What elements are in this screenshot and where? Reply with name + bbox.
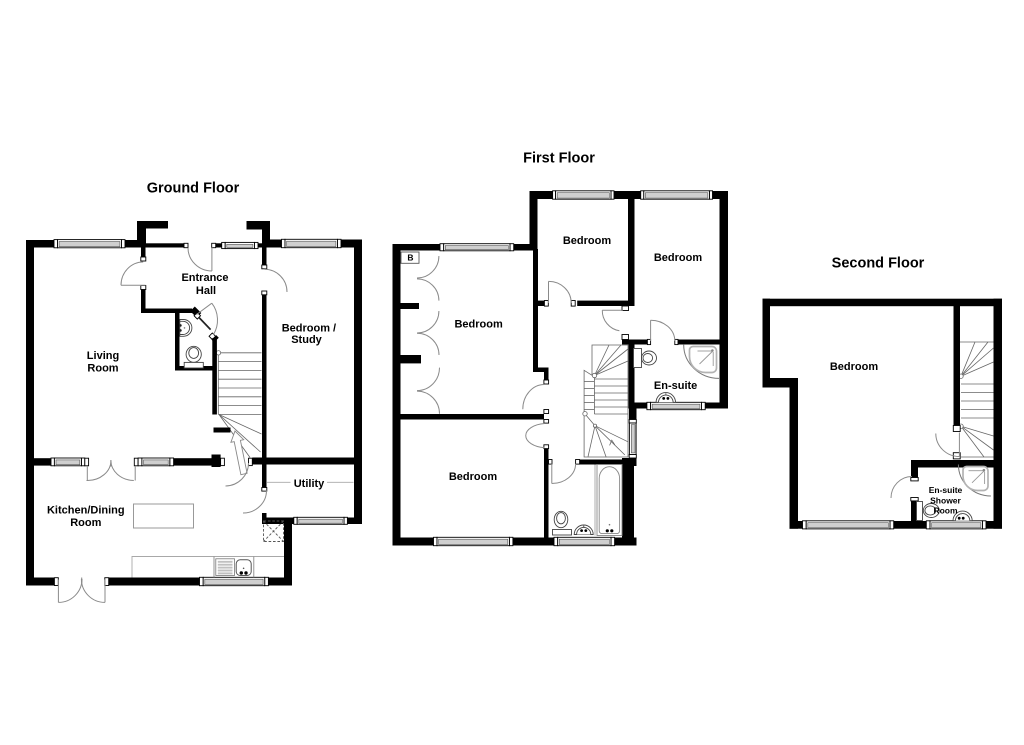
svg-text:B: B	[407, 252, 413, 262]
svg-text:Hall: Hall	[196, 285, 216, 297]
svg-text:En-suite: En-suite	[929, 485, 963, 495]
svg-text:Ground Floor: Ground Floor	[147, 181, 240, 197]
svg-text:Entrance: Entrance	[181, 272, 228, 284]
svg-text:Living: Living	[87, 350, 119, 362]
svg-text:Bedroom: Bedroom	[563, 235, 612, 247]
svg-text:Bedroom: Bedroom	[449, 471, 498, 483]
svg-text:Room: Room	[70, 517, 101, 529]
svg-text:Room: Room	[933, 506, 958, 516]
svg-text:Bedroom: Bedroom	[454, 319, 503, 331]
svg-text:Shower: Shower	[930, 495, 961, 505]
svg-text:En-suite: En-suite	[654, 380, 697, 392]
svg-text:Second Floor: Second Floor	[832, 256, 925, 272]
svg-text:Utility: Utility	[294, 478, 325, 490]
svg-text:Bedroom: Bedroom	[654, 252, 703, 264]
svg-text:Bedroom: Bedroom	[830, 361, 879, 373]
svg-text:First Floor: First Floor	[523, 151, 595, 167]
svg-text:Study: Study	[291, 334, 322, 346]
svg-text:Room: Room	[87, 362, 118, 374]
svg-text:Kitchen/Dining: Kitchen/Dining	[47, 505, 125, 517]
